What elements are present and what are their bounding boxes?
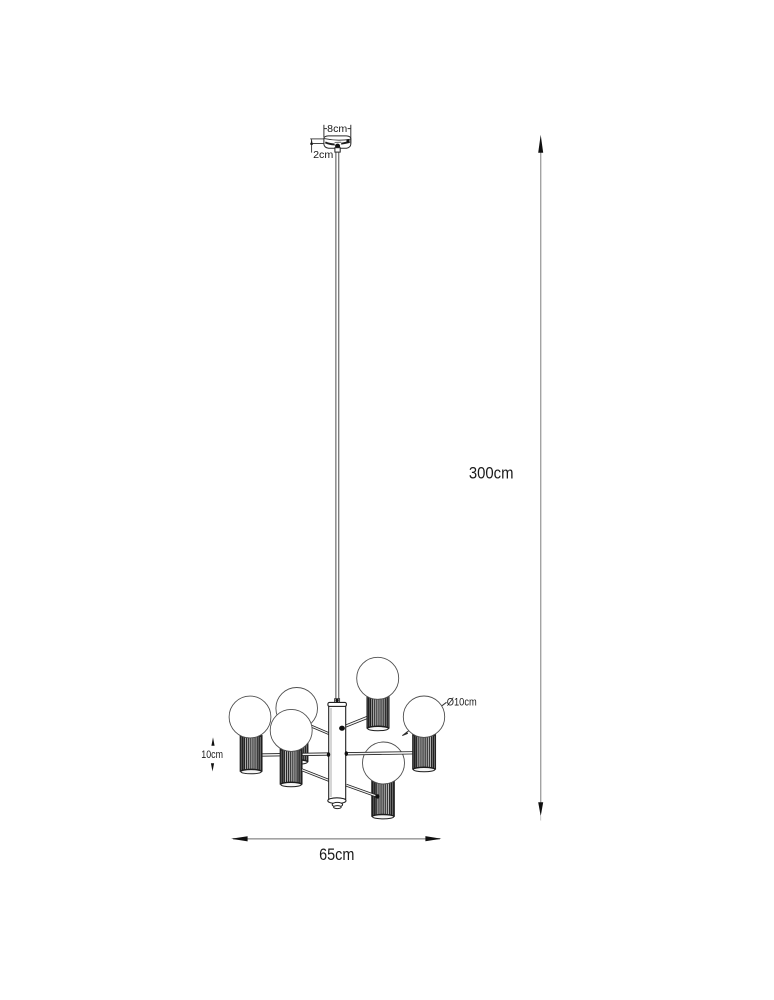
svg-text:Ø10cm: Ø10cm: [447, 696, 477, 708]
svg-text:8cm: 8cm: [327, 124, 347, 135]
svg-text:65cm: 65cm: [319, 845, 354, 864]
svg-text:2cm: 2cm: [313, 150, 333, 161]
svg-text:300cm: 300cm: [469, 465, 514, 483]
svg-text:10cm: 10cm: [201, 749, 223, 761]
